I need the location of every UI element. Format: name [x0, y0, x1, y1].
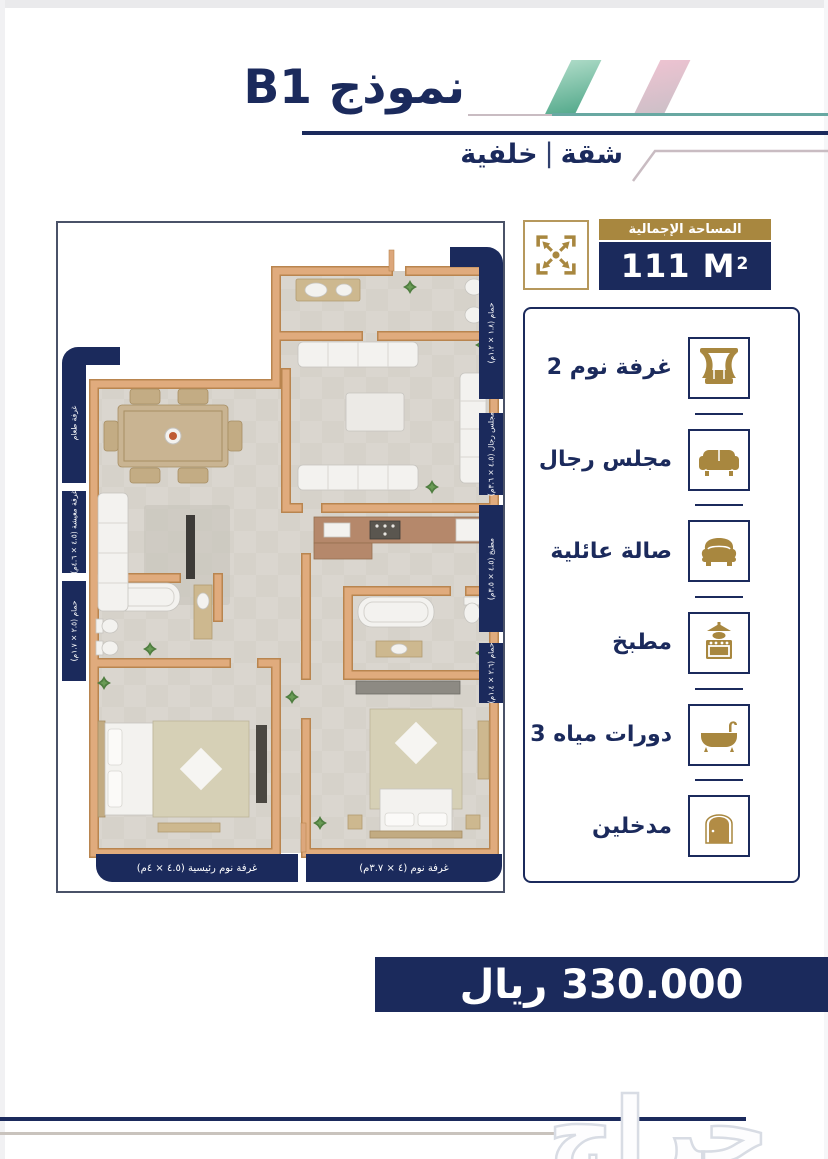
feature-label: مجلس رجال	[539, 447, 672, 472]
subtitle-separator: |	[538, 138, 561, 169]
sofa-icon	[688, 429, 750, 491]
room-label-master-bedroom: غرفة نوم رئيسية (٤.٥ × ٤م)	[96, 854, 298, 882]
feature-row-majlis: مجلس رجال	[525, 415, 798, 505]
feature-label: مدخلين	[592, 814, 672, 839]
room-label-bath-top: حمام (١.٨ × ١.٢م)	[479, 267, 503, 399]
feature-row-kitchen: مطبخ	[525, 598, 798, 688]
price-bar: 330.000 ريال	[375, 957, 828, 1012]
room-label-text: مجلس رجال (٤.٥ × ٣.٦م)	[487, 412, 496, 496]
floor-plan-panel: غرفة طعام غرفة معيشة (٤.٥ × ٤.٦م) حمام (…	[56, 221, 505, 893]
room-label-text: حمام (٢.٦ × ١.٤م)	[487, 643, 496, 704]
bathtub-icon	[688, 704, 750, 766]
couch-icon	[688, 520, 750, 582]
door-icon	[688, 795, 750, 857]
haraj-watermark: حراج	[548, 1078, 769, 1159]
feature-row-family-hall: صالة عائلية	[525, 506, 798, 596]
room-label-bath-right: حمام (٢.٦ × ١.٤م)	[479, 643, 503, 703]
feature-label: مطبخ	[612, 630, 672, 655]
room-label-bedroom: غرفة نوم (٤ × ٣.٧م)	[306, 854, 502, 882]
feature-row-entrances: مدخلين	[525, 781, 798, 871]
bed-icon	[688, 337, 750, 399]
decor-line-gray	[468, 114, 556, 116]
total-area-value: 111 M2	[599, 242, 771, 290]
feature-label: دورات مياه 3	[530, 722, 672, 747]
flyer-page: نموذج B1 شقة|خلفية المساحة الإجمالية 111…	[0, 0, 828, 1159]
decor-slash-teal	[545, 60, 602, 115]
expand-arrows-icon	[523, 220, 589, 290]
title-underline	[302, 131, 828, 135]
room-label-text: غرفة طعام	[70, 406, 79, 441]
subtitle-primary: شقة	[561, 139, 623, 170]
decor-line-teal	[552, 113, 828, 116]
features-panel: غرفة نوم 2 مجلس رجال	[523, 307, 800, 883]
room-label-kitchen: مطبخ (٤.٥ × ٣.٥م)	[479, 505, 503, 632]
area-number: 111 M	[621, 247, 736, 285]
total-area-label: المساحة الإجمالية	[599, 219, 771, 240]
room-label-text: غرفة معيشة (٤.٥ × ٤.٦م)	[70, 490, 79, 574]
feature-label: صالة عائلية	[550, 539, 672, 564]
room-label-text: حمام (١.٨ × ١.٢م)	[487, 303, 496, 364]
area-superscript: 2	[736, 256, 749, 273]
page-title: نموذج B1	[243, 62, 465, 114]
subtitle: شقة|خلفية	[460, 139, 623, 170]
floor-plan-drawing	[58, 223, 503, 891]
room-label-text: حمام (٢.٥ × ١.٧م)	[70, 601, 79, 662]
page-edge-left	[0, 0, 5, 1159]
room-label-bath-left: حمام (٢.٥ × ١.٧م)	[62, 581, 86, 681]
room-label-majlis: مجلس رجال (٤.٥ × ٣.٦م)	[479, 413, 503, 495]
subtitle-decor-line	[625, 145, 828, 185]
feature-row-bedrooms: غرفة نوم 2	[525, 323, 798, 413]
room-label-text: مطبخ (٤.٥ × ٣.٥م)	[487, 537, 496, 599]
room-label-dining: غرفة طعام	[62, 363, 86, 483]
subtitle-secondary: خلفية	[460, 139, 537, 170]
decor-slash-pink	[634, 60, 691, 115]
label-cap-right	[450, 247, 503, 267]
footer-line-pink	[0, 1132, 594, 1135]
feature-row-bathrooms: دورات مياه 3	[525, 690, 798, 780]
stove-icon	[688, 612, 750, 674]
page-edge-top	[0, 0, 828, 8]
room-label-living: غرفة معيشة (٤.٥ × ٤.٦م)	[62, 491, 86, 573]
feature-label: غرفة نوم 2	[547, 355, 672, 380]
